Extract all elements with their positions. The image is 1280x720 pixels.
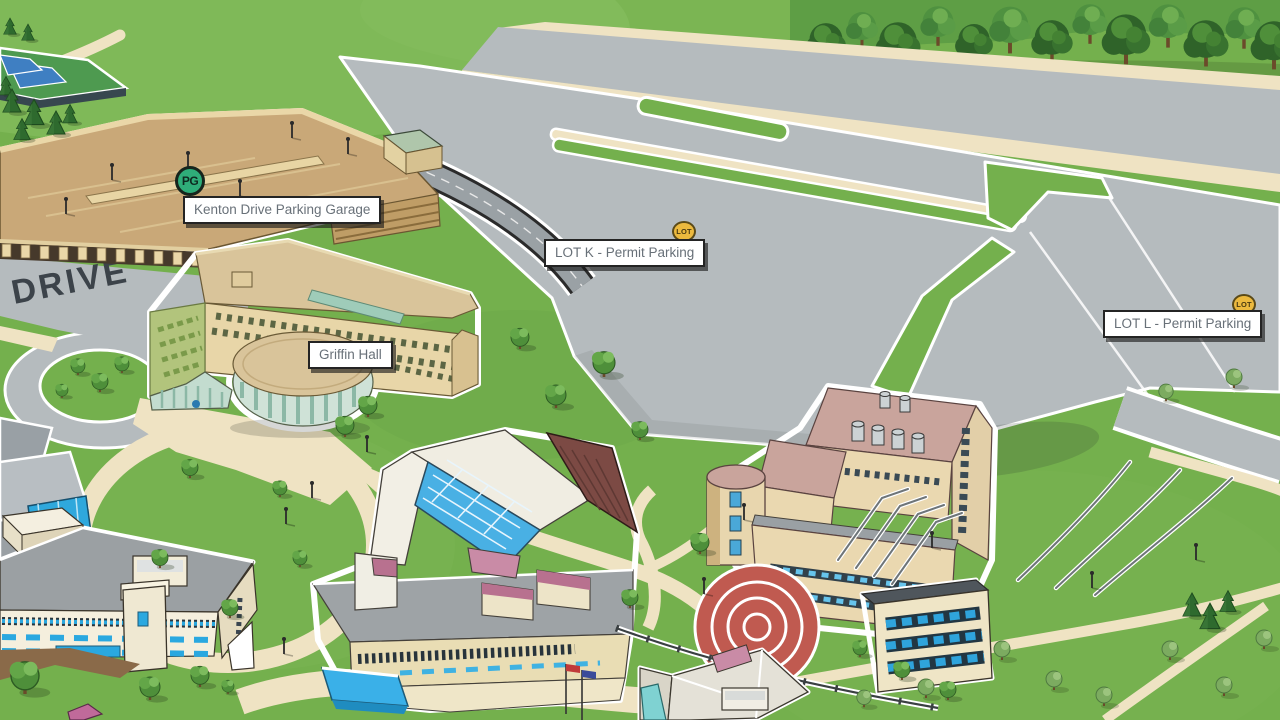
campus-map-viewport[interactable]: DRIVE: [0, 0, 1280, 720]
map-label-lot-k[interactable]: LOT K - Permit Parking: [544, 239, 705, 267]
campus-map-canvas: DRIVE: [0, 0, 1280, 720]
map-label-griffin-hall[interactable]: Griffin Hall: [308, 341, 393, 369]
building-east-dorm[interactable]: [862, 580, 992, 692]
parking-garage-badge-icon[interactable]: PG: [175, 166, 205, 196]
map-label-kenton-drive-parking-garage[interactable]: Kenton Drive Parking Garage: [183, 196, 381, 224]
map-label-lot-l[interactable]: LOT L - Permit Parking: [1103, 310, 1262, 338]
